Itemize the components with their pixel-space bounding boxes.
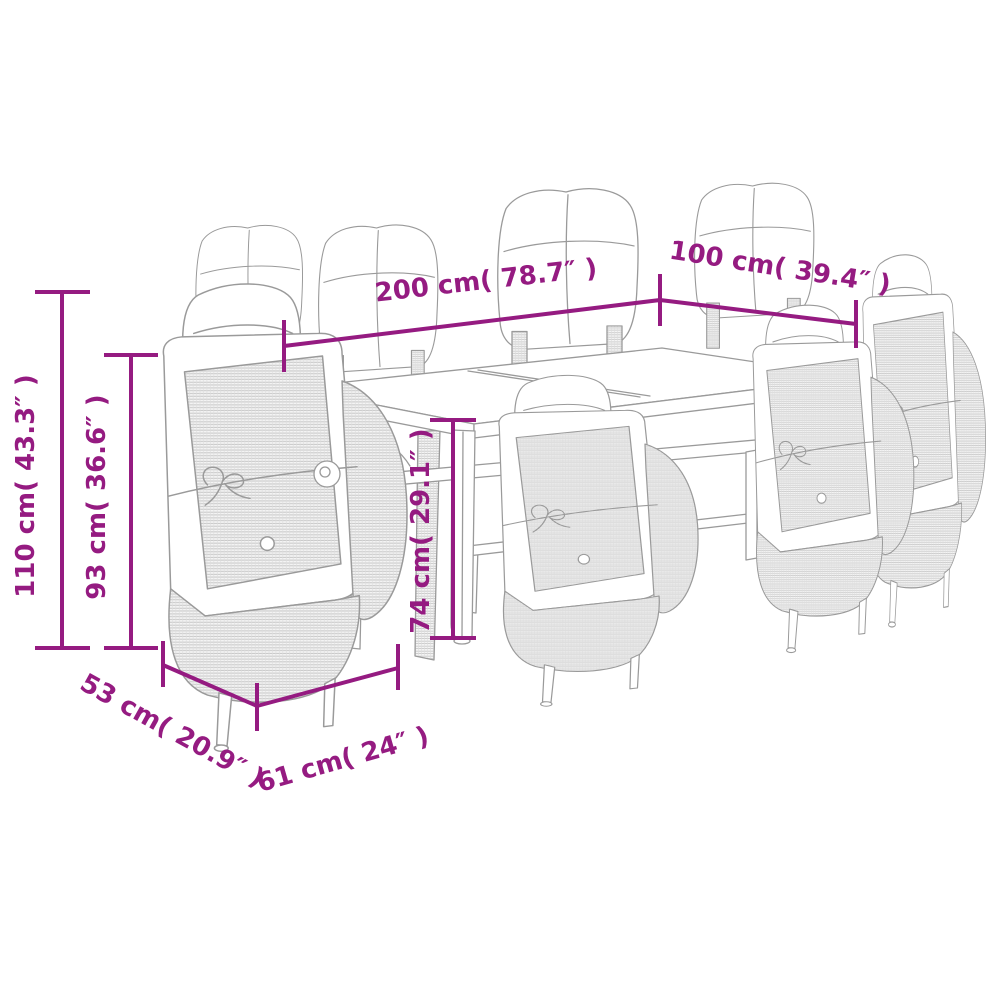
dimension-lines — [35, 274, 856, 731]
dimension-line-backrest-height — [104, 355, 158, 648]
furniture-line-art — [0, 0, 1000, 1000]
dim-label-total-height: 110 cm( 43.3″ ) — [13, 374, 39, 597]
chair-front-row-2 — [499, 375, 698, 706]
recline-handle — [314, 461, 340, 487]
dim-label-table-height: 74 cm( 29.1″ ) — [408, 428, 434, 633]
dim-label-backrest-height: 93 cm( 36.6″ ) — [84, 394, 110, 599]
dimension-diagram: 110 cm( 43.3″ ) 93 cm( 36.6″ ) 74 cm( 29… — [0, 0, 1000, 1000]
table-leg-front-right — [746, 450, 757, 560]
